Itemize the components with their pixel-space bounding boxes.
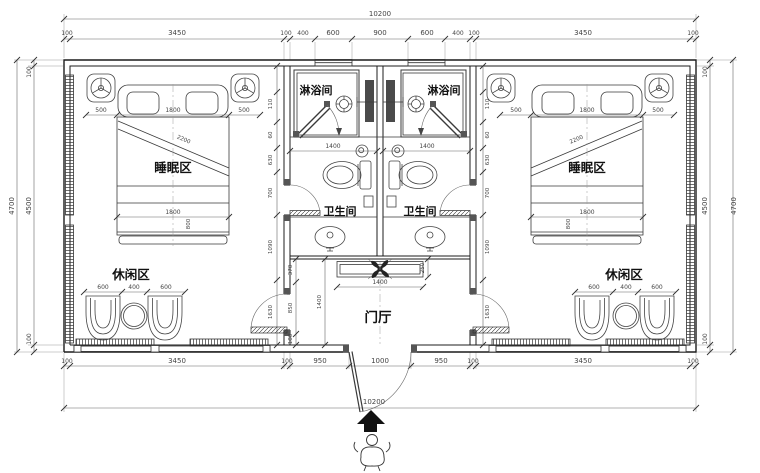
dim-label: 180	[288, 333, 294, 344]
dim-label: 900	[373, 29, 386, 37]
radiator-right-upper	[687, 75, 695, 215]
dim-label: 4500	[701, 197, 709, 215]
dim-label: 600	[588, 284, 600, 291]
dim-label: 950	[434, 357, 447, 365]
dim-label: 2200	[176, 135, 192, 146]
dim-label: 110	[485, 98, 491, 109]
window-bottom-right-b	[606, 339, 684, 346]
shower-left	[287, 70, 380, 154]
dim-label: 1090	[485, 239, 491, 254]
dim-label: 2200	[569, 134, 585, 145]
dim-label: 500	[95, 107, 107, 114]
dim-label: 1800	[579, 107, 594, 114]
dim-label: 800	[566, 218, 572, 229]
floor-drain-icon	[408, 96, 424, 112]
room-label-toilet: 卫生间	[404, 204, 437, 218]
dim-label: 4700	[730, 197, 738, 215]
dim-chain-left-labels: 110 60 630 700 1090 1630	[268, 98, 274, 319]
room-label-hall: 门厅	[365, 309, 392, 326]
dim-label: 110	[268, 98, 274, 109]
dim-label: 500	[652, 107, 664, 114]
armchair	[575, 296, 609, 340]
dim-label: 100	[26, 333, 33, 345]
dim-label: 400	[297, 30, 309, 37]
wall-bracket	[387, 196, 396, 207]
dim-label: 1800	[579, 209, 594, 216]
dim-label: 100	[702, 66, 709, 78]
bedside-lamp-icon	[87, 74, 115, 102]
leisure-left	[81, 289, 188, 340]
bed-pillow	[127, 92, 159, 114]
dim-label: 850	[288, 302, 294, 313]
room-label-toilet: 卫生间	[324, 204, 357, 218]
dim-label: 1400	[372, 279, 387, 286]
dim-label: 3450	[574, 357, 592, 365]
dim-label: 60	[268, 131, 274, 139]
hall	[293, 256, 431, 348]
room-label-leisure: 休闲区	[111, 267, 150, 282]
room-label-leisure: 休闲区	[604, 267, 643, 282]
dimension-labels-bottom: 100 3450 100 950 1000 950 100 3450 100 1…	[61, 357, 699, 406]
sink	[315, 227, 345, 252]
dim-label: 100	[467, 358, 479, 365]
dim-label: 100	[702, 333, 709, 345]
dim-label: 400	[128, 284, 140, 291]
dim-label: 4500	[25, 197, 33, 215]
dim-label: 700	[485, 187, 491, 198]
armchair	[148, 296, 182, 340]
dim-label: 1090	[268, 239, 274, 254]
bedside-lamp-icon	[231, 74, 259, 102]
dim-label: 4700	[8, 197, 16, 215]
dim-label: 1400	[317, 294, 323, 309]
dim-label: 100	[281, 358, 293, 365]
floor-plan-drawing: 10200 100 3450 100 400 600 900 600 400 1…	[0, 0, 760, 473]
dim-label: 600	[651, 284, 663, 291]
dim-label: 100	[687, 358, 699, 365]
armchair	[86, 296, 120, 340]
dim-label: 1800	[165, 209, 180, 216]
door-leaf	[473, 327, 509, 333]
room-label-sleep: 睡眠区	[568, 160, 606, 175]
shower-right	[380, 70, 473, 154]
dim-label: 500	[510, 107, 522, 114]
toilet	[323, 161, 371, 189]
dim-label: 370	[288, 264, 294, 275]
entrance	[349, 352, 411, 472]
dimension-labels-top: 10200 100 3450 100 400 600 900 600 400 1…	[61, 10, 699, 37]
window-bottom-left-b	[190, 339, 268, 346]
dim-label: 400	[452, 30, 464, 37]
dim-label: 1630	[268, 304, 274, 319]
dim-label: 600	[326, 29, 339, 37]
room-label-shower: 淋浴间	[428, 83, 461, 97]
bedside-lamp-icon	[487, 74, 515, 102]
shower-fixture	[386, 80, 395, 122]
bed-pillow	[601, 92, 633, 114]
toilet	[389, 161, 437, 189]
dim-label: 3450	[168, 357, 186, 365]
bed-pillow	[186, 92, 218, 114]
bedroom-left-labels: 睡眠区 500 1800 500 1800 800 2200	[95, 107, 250, 229]
dim-label: 400	[620, 284, 632, 291]
dimension-labels-left: 4700 100 4500 100	[8, 66, 33, 345]
dim-label: 100	[468, 30, 480, 37]
dim-label: 600	[97, 284, 109, 291]
leisure-right-labels: 休闲区 600 400 600	[588, 267, 663, 291]
sink	[415, 227, 445, 252]
dim-label: 250	[420, 262, 426, 273]
dim-label: 1400	[419, 143, 434, 150]
round-table	[121, 303, 147, 329]
dim-chain-left-room	[274, 63, 280, 348]
dim-total-bottom: 10200	[363, 398, 385, 406]
hall-labels: 门厅 1400 370 850 180 1400 250	[288, 262, 426, 344]
room-label-sleep: 睡眠区	[154, 160, 192, 175]
bathroom-left	[290, 145, 373, 251]
window-bottom-right-a	[492, 339, 570, 346]
leisure-left-labels: 休闲区 600 400 600	[97, 267, 172, 291]
bathroom-right	[387, 145, 470, 251]
shower-fixture	[365, 80, 374, 122]
dim-label: 60	[485, 131, 491, 139]
dim-label: 700	[268, 187, 274, 198]
wall-bracket	[364, 196, 373, 207]
door-leaf	[251, 327, 287, 333]
radiator-left-lower	[66, 225, 74, 343]
dim-label: 1000	[371, 357, 389, 365]
dim-label: 600	[160, 284, 172, 291]
entry-arrow-icon	[357, 410, 385, 432]
dim-total-top: 10200	[369, 10, 391, 18]
dim-label: 100	[61, 358, 73, 365]
dim-label: 100	[687, 30, 699, 37]
dimensions-top	[61, 14, 699, 60]
dim-label: 1400	[325, 143, 340, 150]
dim-label: 630	[268, 154, 274, 165]
dimension-labels-right: 100 4500 100 4700	[701, 66, 738, 345]
armchair	[640, 296, 674, 340]
bedroom-right-labels: 睡眠区 500 1800 500 1800 800 2200	[510, 107, 664, 229]
dimensions-left	[14, 57, 63, 355]
bedside-lamp-icon	[645, 74, 673, 102]
round-table	[613, 303, 639, 329]
person-figure	[354, 435, 390, 472]
bed-pillow	[542, 92, 574, 114]
dim-label: 1630	[485, 304, 491, 319]
leisure-right	[572, 289, 679, 340]
dim-label: 3450	[168, 29, 186, 37]
floor-plan-canvas: 10200 100 3450 100 400 600 900 600 400 1…	[0, 0, 760, 473]
dim-chain-right-labels: 110 60 630 700 1090 1630	[485, 98, 491, 319]
dim-label: 100	[26, 66, 33, 78]
door-leaf	[440, 211, 470, 216]
radiator-right-lower	[687, 225, 695, 343]
floor-drain-icon	[336, 96, 352, 112]
dim-label: 1800	[165, 107, 180, 114]
radiator-left-upper	[66, 75, 74, 215]
room-label-shower: 淋浴间	[300, 83, 333, 97]
window-bottom-left-a	[76, 339, 154, 346]
dim-label: 3450	[574, 29, 592, 37]
dim-label: 630	[485, 154, 491, 165]
dim-label: 100	[61, 30, 73, 37]
dim-label: 100	[280, 30, 292, 37]
dim-label: 600	[420, 29, 433, 37]
door-leaf	[290, 211, 320, 216]
dim-label: 950	[313, 357, 326, 365]
dim-label: 500	[238, 107, 250, 114]
dim-label: 800	[186, 218, 192, 229]
